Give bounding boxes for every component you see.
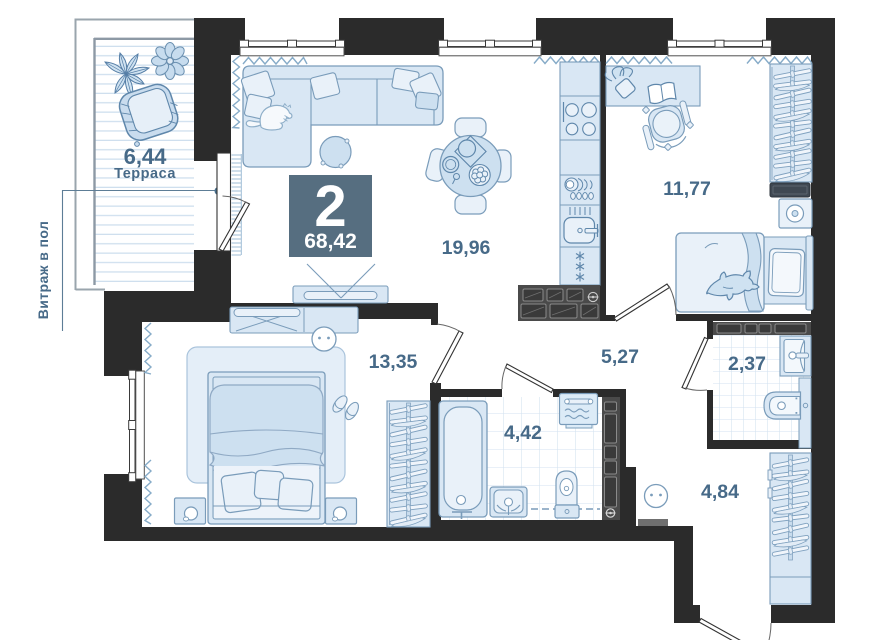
svg-text:5,27: 5,27: [601, 346, 639, 368]
svg-text:4,42: 4,42: [504, 422, 542, 444]
svg-text:11,77: 11,77: [663, 178, 711, 200]
svg-text:19,96: 19,96: [442, 237, 491, 259]
svg-text:2,37: 2,37: [728, 353, 766, 375]
svg-text:68,42: 68,42: [304, 230, 357, 253]
svg-text:4,84: 4,84: [701, 481, 739, 503]
svg-text:Терраса: Терраса: [114, 166, 176, 182]
svg-text:13,35: 13,35: [369, 351, 418, 373]
svg-text:Витраж в пол: Витраж в пол: [35, 221, 51, 320]
